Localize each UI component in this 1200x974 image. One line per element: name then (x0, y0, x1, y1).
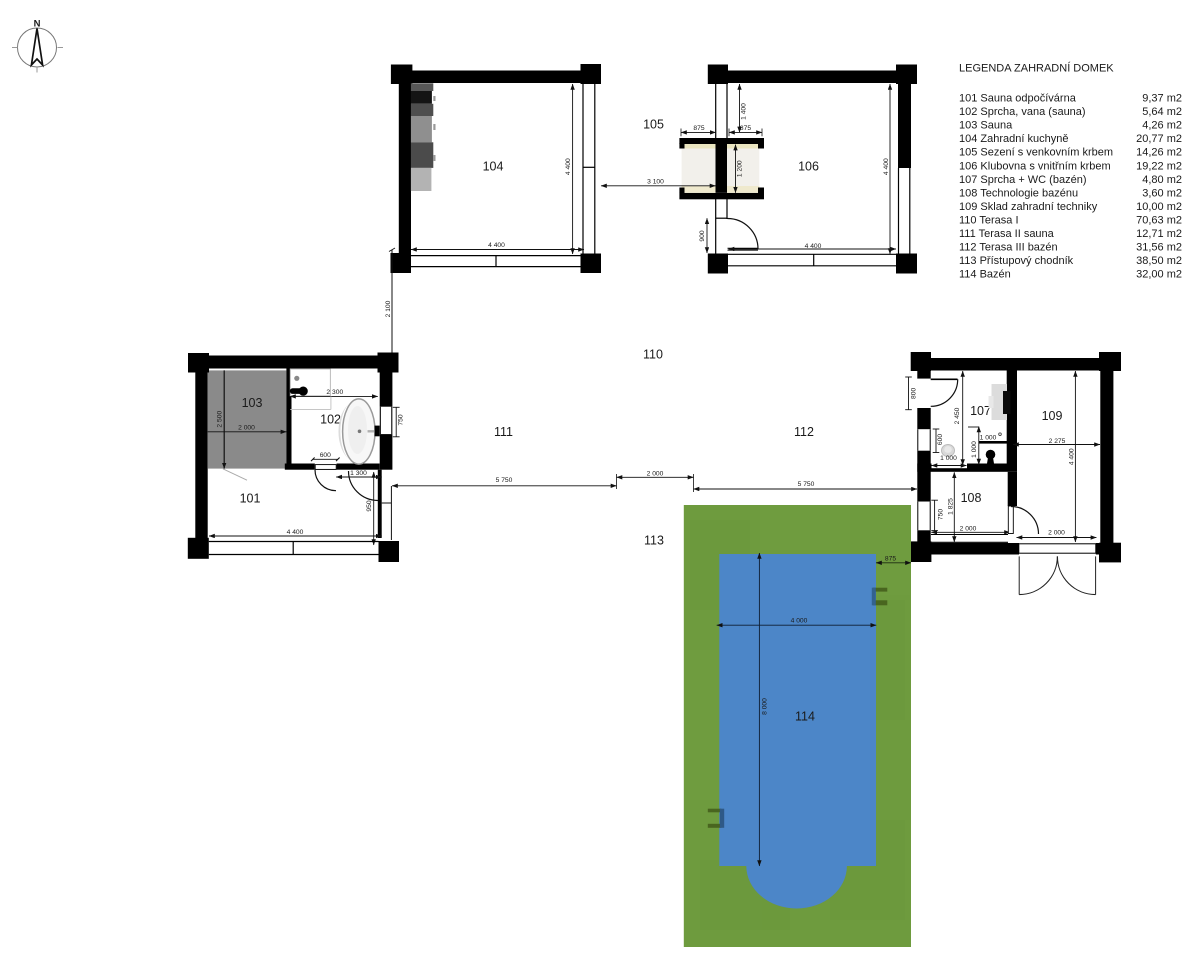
svg-text:1 000: 1 000 (980, 435, 997, 442)
svg-text:102: 102 (320, 413, 341, 427)
svg-text:109 Sklad zahradní techniky: 109 Sklad zahradní techniky (959, 201, 1098, 213)
svg-text:N: N (34, 19, 41, 30)
svg-text:1 300: 1 300 (350, 470, 367, 477)
svg-text:5,64 m2: 5,64 m2 (1142, 106, 1182, 118)
svg-text:19,22 m2: 19,22 m2 (1136, 160, 1182, 172)
svg-text:900: 900 (699, 230, 706, 241)
svg-text:114: 114 (795, 710, 815, 724)
svg-text:113 Přístupový chodník: 113 Přístupový chodník (959, 255, 1074, 267)
svg-text:14,26 m2: 14,26 m2 (1136, 147, 1182, 159)
svg-text:103 Sauna: 103 Sauna (959, 120, 1013, 132)
svg-text:101: 101 (240, 491, 261, 505)
svg-text:4 400: 4 400 (287, 529, 304, 536)
svg-text:20,77 m2: 20,77 m2 (1136, 133, 1182, 145)
svg-text:750: 750 (937, 509, 944, 520)
svg-text:4 400: 4 400 (1069, 448, 1076, 465)
svg-text:111: 111 (494, 425, 513, 439)
svg-text:4,26 m2: 4,26 m2 (1142, 120, 1182, 132)
svg-text:102 Sprcha, vana (sauna): 102 Sprcha, vana (sauna) (959, 106, 1086, 118)
svg-text:108 Technologie bazénu: 108 Technologie bazénu (959, 187, 1078, 199)
svg-text:8 000: 8 000 (762, 698, 769, 715)
svg-text:110 Terasa I: 110 Terasa I (959, 215, 1019, 227)
svg-text:2 275: 2 275 (1049, 438, 1066, 445)
svg-text:750: 750 (398, 414, 405, 425)
svg-text:103: 103 (242, 396, 263, 410)
svg-text:1 200: 1 200 (737, 160, 744, 177)
svg-text:1 825: 1 825 (948, 498, 955, 515)
svg-text:2 000: 2 000 (238, 424, 255, 431)
svg-text:4 400: 4 400 (565, 158, 572, 175)
svg-text:10,00 m2: 10,00 m2 (1136, 201, 1182, 213)
svg-text:1 000: 1 000 (940, 455, 957, 462)
svg-text:1 400: 1 400 (741, 103, 748, 120)
svg-text:32,00 m2: 32,00 m2 (1136, 269, 1182, 281)
svg-text:2 300: 2 300 (326, 389, 343, 396)
svg-text:875: 875 (693, 125, 704, 132)
svg-text:108: 108 (961, 491, 982, 505)
svg-text:105: 105 (643, 118, 664, 132)
svg-text:106 Klubovna s vnitřním krbem: 106 Klubovna s vnitřním krbem (959, 160, 1111, 172)
svg-text:112: 112 (794, 425, 814, 439)
svg-text:106: 106 (798, 160, 819, 174)
svg-text:LEGENDA ZAHRADNÍ DOMEK: LEGENDA ZAHRADNÍ DOMEK (959, 62, 1114, 75)
svg-text:2 450: 2 450 (954, 407, 961, 424)
svg-text:109: 109 (1042, 409, 1063, 423)
svg-text:107 Sprcha + WC (bazén): 107 Sprcha + WC (bazén) (959, 174, 1086, 186)
svg-text:875: 875 (740, 125, 751, 132)
svg-text:9,37 m2: 9,37 m2 (1142, 93, 1182, 105)
svg-text:5 750: 5 750 (798, 481, 815, 488)
svg-text:113: 113 (644, 534, 664, 548)
svg-text:114 Bazén: 114 Bazén (959, 269, 1011, 281)
svg-text:2 500: 2 500 (216, 411, 223, 428)
svg-text:111 Terasa II sauna: 111 Terasa II sauna (959, 228, 1055, 240)
svg-text:104: 104 (483, 160, 504, 174)
svg-text:875: 875 (885, 555, 896, 562)
svg-text:104 Zahradní kuchyně: 104 Zahradní kuchyně (959, 133, 1068, 145)
svg-text:70,63 m2: 70,63 m2 (1136, 215, 1182, 227)
svg-text:950: 950 (366, 500, 373, 511)
svg-text:5 750: 5 750 (496, 477, 513, 484)
svg-text:4 000: 4 000 (791, 617, 808, 624)
svg-text:3 100: 3 100 (647, 178, 664, 185)
svg-text:4 400: 4 400 (488, 242, 505, 249)
svg-text:4 400: 4 400 (883, 158, 890, 175)
svg-text:31,56 m2: 31,56 m2 (1136, 242, 1182, 254)
svg-text:800: 800 (910, 388, 917, 399)
svg-text:600: 600 (937, 434, 944, 445)
svg-text:38,50 m2: 38,50 m2 (1136, 255, 1182, 267)
svg-text:4,80 m2: 4,80 m2 (1142, 174, 1182, 186)
svg-text:105 Sezení s venkovním krbem: 105 Sezení s venkovním krbem (959, 147, 1113, 159)
svg-text:2 000: 2 000 (1048, 530, 1065, 537)
svg-text:600: 600 (320, 452, 331, 459)
svg-text:1 000: 1 000 (971, 441, 978, 458)
svg-text:110: 110 (643, 348, 663, 362)
svg-text:12,71 m2: 12,71 m2 (1136, 228, 1182, 240)
svg-text:2 000: 2 000 (647, 470, 664, 477)
svg-text:4 400: 4 400 (805, 243, 822, 250)
svg-text:2 000: 2 000 (960, 525, 977, 532)
svg-text:101 Sauna odpočívárna: 101 Sauna odpočívárna (959, 93, 1077, 105)
svg-text:3,60 m2: 3,60 m2 (1142, 187, 1182, 199)
svg-text:2 100: 2 100 (385, 300, 392, 317)
svg-text:112 Terasa III bazén: 112 Terasa III bazén (959, 242, 1058, 254)
svg-text:107: 107 (970, 404, 991, 418)
